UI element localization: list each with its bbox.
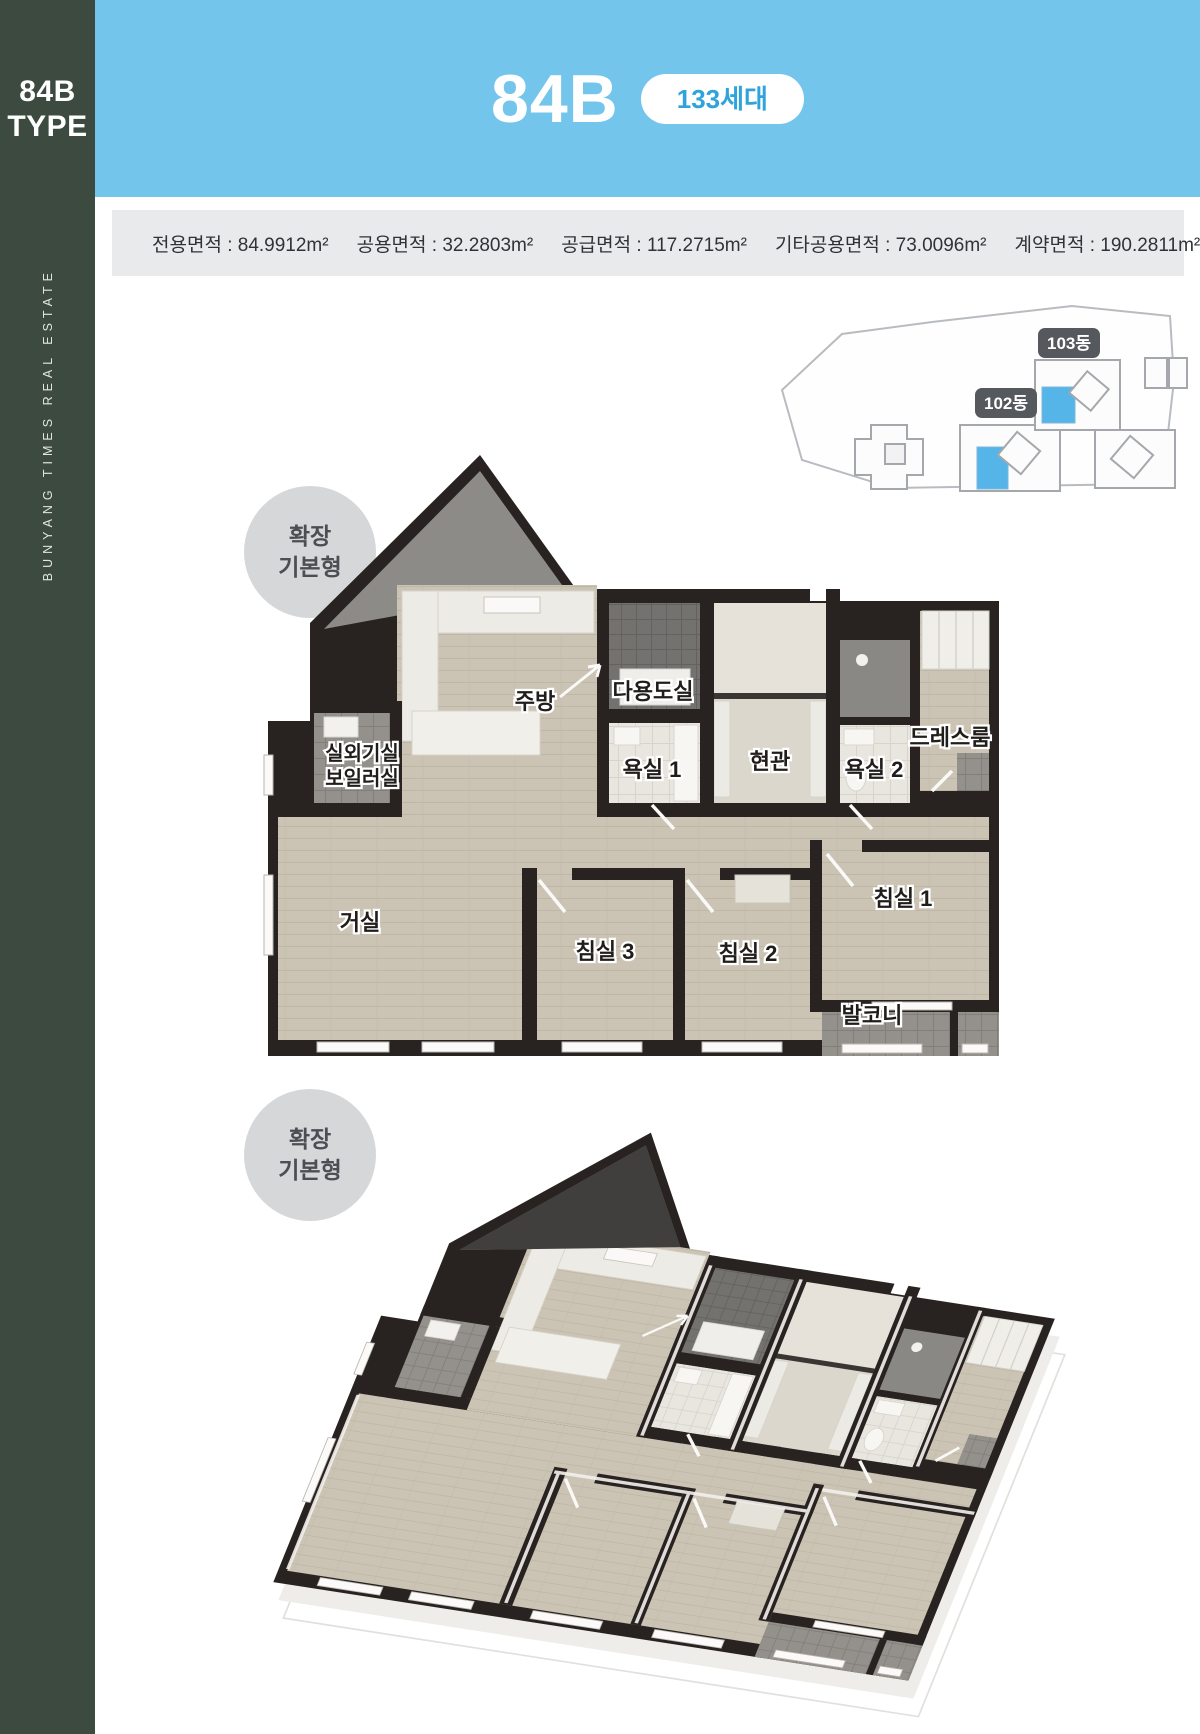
spec-supply-area: 공급면적 : 117.2715m² xyxy=(547,226,761,261)
building-badge-103: 103동 xyxy=(1038,328,1100,358)
type-label: 84B TYPE xyxy=(0,74,95,145)
building-badge-103-label: 103동 xyxy=(1047,334,1091,353)
room-label-entrance: 현관 xyxy=(750,749,790,774)
area-spec-bar: 전용면적 : 84.9912m² 공용면적 : 32.2803m² 공급면적 :… xyxy=(112,210,1184,276)
room-label-living: 거실 xyxy=(340,910,380,935)
spec-contract-area: 계약면적 : 190.2811m² xyxy=(1001,226,1200,261)
floor-plan-2d: 주방 다용도실 실외기실 보일러실 욕실 1 현관 욕실 2 드레스룸 거실 침… xyxy=(264,455,999,1056)
building-badge-102: 102동 xyxy=(975,388,1037,418)
type-label-line1: 84B xyxy=(0,74,95,109)
room-label-bedroom2: 침실 2 xyxy=(719,941,778,966)
type-label-line2: TYPE xyxy=(0,109,95,144)
room-label-balcony: 발코니 xyxy=(842,1003,903,1028)
building-103 xyxy=(1035,360,1120,430)
room-label-kitchen: 주방 xyxy=(515,689,555,714)
room-label-bath2: 욕실 2 xyxy=(845,757,904,782)
spec-exclusive-area: 전용면적 : 84.9912m² xyxy=(138,226,343,261)
left-sidebar: 84B TYPE BUNYANG TIMES REAL ESTATE xyxy=(0,0,95,1734)
brochure-page: 84B TYPE BUNYANG TIMES REAL ESTATE 84B 1… xyxy=(0,0,1200,1734)
room-label-outdoor-unit: 실외기실 xyxy=(325,742,399,765)
room-label-bath1: 욕실 1 xyxy=(623,757,682,782)
sidebar-vertical-text: BUNYANG TIMES REAL ESTATE xyxy=(41,268,55,581)
floor-plan-3d xyxy=(270,1104,1112,1717)
room-label-bedroom3: 침실 3 xyxy=(576,939,635,964)
spec-other-common-area: 기타공용면적 : 73.0096m² xyxy=(761,226,1001,261)
site-outbuilding xyxy=(1169,358,1187,388)
page-header: 84B 133세대 xyxy=(95,0,1200,197)
spec-common-area: 공용면적 : 32.2803m² xyxy=(343,226,548,261)
units-badge: 133세대 xyxy=(641,74,804,124)
page-title: 84B xyxy=(491,65,619,133)
building-badge-102-label: 102동 xyxy=(984,394,1028,413)
floor-plans: 주방 다용도실 실외기실 보일러실 욕실 1 현관 욕실 2 드레스룸 거실 침… xyxy=(100,440,1200,1734)
room-label-bedroom1: 침실 1 xyxy=(874,886,933,911)
room-label-boiler: 보일러실 xyxy=(325,767,399,790)
room-label-utility: 다용도실 xyxy=(613,679,694,704)
room-label-dress-room: 드레스룸 xyxy=(910,725,991,750)
site-outbuilding xyxy=(1145,358,1167,388)
